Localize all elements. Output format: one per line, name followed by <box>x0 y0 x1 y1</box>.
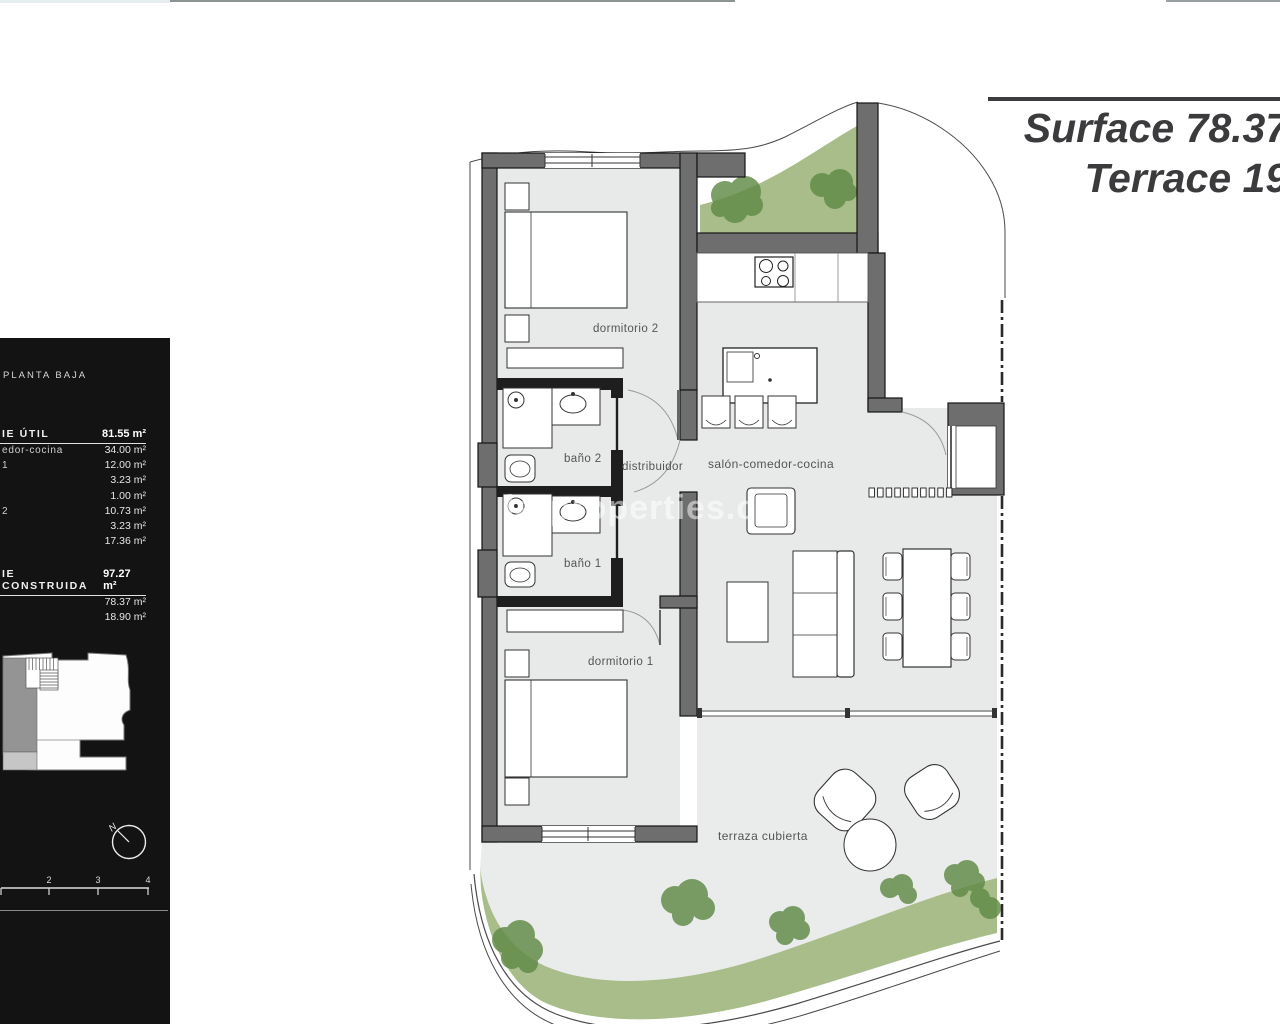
superficie-construida-table: IE CONSTRUIDA 97.27 m² 78.37 m² 18.90 m² <box>0 568 146 626</box>
coffee-table <box>727 582 768 642</box>
row-value: 3.23 m² <box>110 474 146 486</box>
row-value: 12.00 m² <box>105 459 146 471</box>
row-value: 17.36 m² <box>105 535 146 547</box>
label-bano1: baño 1 <box>564 558 602 570</box>
table-header: IE ÚTIL 81.55 m² <box>0 428 146 444</box>
table-total: 81.55 m² <box>102 428 146 440</box>
label-bano2: baño 2 <box>564 453 602 465</box>
floor-label: PLANTA BAJA <box>3 370 87 381</box>
row-label: edor-cocina <box>2 445 63 456</box>
table-header: IE CONSTRUIDA 97.27 m² <box>0 568 146 596</box>
superficie-util-table: IE ÚTIL 81.55 m² edor-cocina34.00 m² 112… <box>0 428 146 550</box>
row-label: 2 <box>2 506 8 517</box>
row-value: 78.37 m² <box>105 596 146 608</box>
row-label: 1 <box>2 460 8 471</box>
scale-bar: 2 3 4 <box>0 872 152 898</box>
row-value: 3.23 m² <box>110 520 146 532</box>
row-value: 1.00 m² <box>110 490 146 502</box>
table-row: edor-cocina34.00 m² <box>0 444 146 459</box>
scale-tick-label: 2 <box>46 875 51 885</box>
terrace-table <box>844 819 896 871</box>
window-dormitorio2 <box>545 153 640 168</box>
row-value: 18.90 m² <box>105 611 146 623</box>
mini-plan-thumbnail <box>0 650 140 800</box>
sofa <box>793 551 854 677</box>
table-row: 18.90 m² <box>0 611 146 626</box>
compass-n-label: N <box>107 821 119 834</box>
label-dormitorio2: dormitorio 2 <box>593 323 659 335</box>
bar-stools <box>702 396 796 428</box>
dining-set <box>883 549 970 667</box>
scale-tick-label: 4 <box>145 875 150 885</box>
table-row: 3.23 m² <box>0 474 146 489</box>
watermark: larproperties.co <box>505 489 778 528</box>
label-dormitorio1: dormitorio 1 <box>588 656 654 668</box>
kitchen-counter <box>697 253 868 302</box>
table-row: 1.00 m² <box>0 490 146 505</box>
garden-top <box>700 126 857 233</box>
table-row: 3.23 m² <box>0 520 146 535</box>
compass-icon: N <box>105 818 151 864</box>
cooktop-icon <box>755 257 793 287</box>
table-row: 210.73 m² <box>0 505 146 520</box>
label-salon: salón-comedor-cocina <box>708 457 834 471</box>
sidebar-divider <box>0 910 168 911</box>
table-row: 112.00 m² <box>0 459 146 474</box>
table-total: 97.27 m² <box>103 568 146 592</box>
table-row: 17.36 m² <box>0 535 146 550</box>
window-dormitorio1 <box>542 826 635 842</box>
scale-tick-label: 3 <box>95 875 100 885</box>
row-value: 10.73 m² <box>105 505 146 517</box>
kitchen-island <box>723 348 817 403</box>
table-row: 78.37 m² <box>0 596 146 611</box>
shaft <box>948 403 1004 495</box>
row-value: 34.00 m² <box>105 444 146 456</box>
label-distribuidor: distribuidor <box>622 461 683 473</box>
table-title: IE ÚTIL <box>2 428 49 440</box>
label-terraza: terraza cubierta <box>718 829 808 843</box>
table-title: IE CONSTRUIDA <box>2 568 103 592</box>
sidebar: PLANTA BAJA IE ÚTIL 81.55 m² edor-cocina… <box>0 338 170 1024</box>
stairs-hatch <box>26 658 58 690</box>
